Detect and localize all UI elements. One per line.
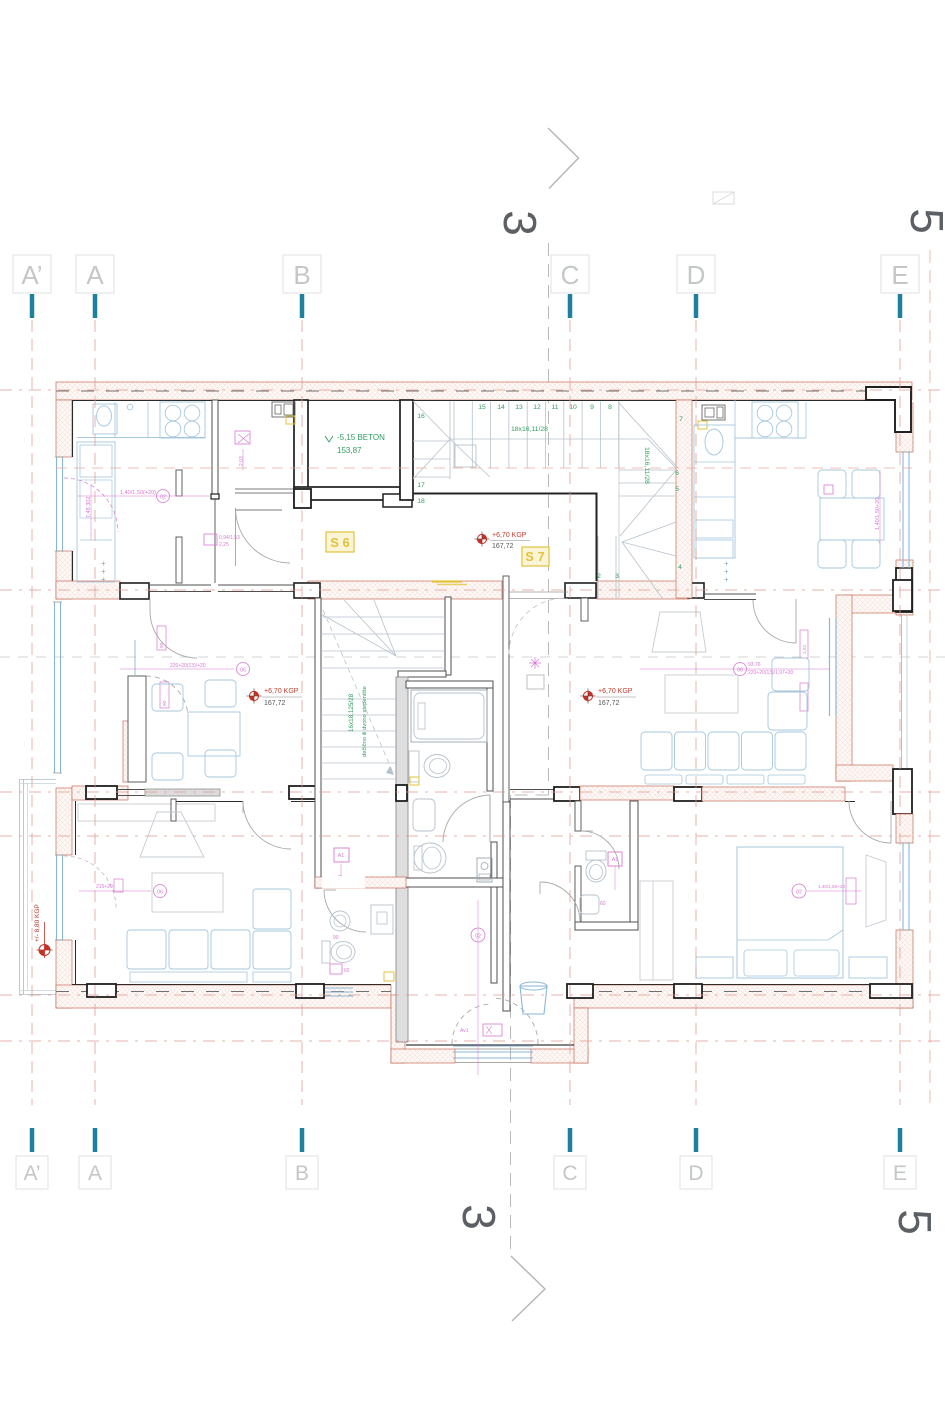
svg-text:E: E (893, 1162, 907, 1185)
svg-text:5: 5 (889, 1209, 941, 1235)
svg-text:167,72: 167,72 (264, 700, 286, 707)
svg-text:C: C (562, 1162, 577, 1185)
svg-text:90: 90 (162, 700, 168, 706)
svg-text:93,76: 93,76 (748, 662, 761, 668)
svg-text:12: 12 (533, 404, 541, 411)
svg-text:60: 60 (344, 968, 350, 974)
svg-text:02: 02 (796, 890, 802, 896)
svg-text:17: 17 (417, 482, 425, 489)
svg-text:A1: A1 (612, 857, 619, 863)
svg-text:2: 2 (597, 573, 601, 580)
svg-text:06: 06 (157, 890, 163, 896)
svg-text:-5,15 BETON: -5,15 BETON (337, 433, 385, 442)
svg-text:02: 02 (475, 934, 481, 940)
svg-text:90: 90 (159, 642, 165, 648)
svg-text:16x18,125/28: 16x18,125/28 (348, 693, 355, 732)
svg-text:+6,70 KGP: +6,70 KGP (492, 532, 527, 539)
svg-text:0,94/1,53: 0,94/1,53 (219, 535, 240, 541)
svg-text:15: 15 (478, 404, 486, 411)
svg-text:2,03: 2,03 (239, 456, 245, 466)
svg-text:D: D (687, 260, 706, 290)
svg-text:06: 06 (737, 668, 743, 674)
svg-text:C: C (561, 260, 580, 290)
svg-text:220+20(13)/1,97+20: 220+20(13)/1,97+20 (748, 670, 794, 676)
svg-text:5: 5 (901, 208, 945, 234)
svg-text:11: 11 (551, 404, 558, 411)
svg-text:2,25: 2,25 (219, 542, 229, 548)
svg-text:A1: A1 (338, 853, 345, 859)
svg-text:13: 13 (515, 404, 523, 411)
svg-text:18: 18 (417, 498, 425, 505)
svg-text:+: + (101, 575, 106, 584)
svg-text:dečično ili dvono stepenište: dečično ili dvono stepenište (362, 686, 368, 757)
svg-text:167,72: 167,72 (492, 543, 514, 550)
svg-text:90: 90 (333, 935, 339, 941)
svg-text:1,51: 1,51 (802, 644, 808, 654)
svg-text:9: 9 (590, 404, 594, 411)
svg-text:1,40/1,50(+20): 1,40/1,50(+20) (120, 490, 156, 496)
svg-text:220+20(13)/+20: 220+20(13)/+20 (170, 663, 206, 669)
svg-text:A: A (86, 260, 104, 290)
svg-text:D: D (688, 1162, 703, 1185)
svg-text:B: B (293, 260, 310, 290)
svg-text:+: + (724, 575, 729, 584)
svg-text:+6,70 KGP: +6,70 KGP (598, 688, 633, 695)
svg-text:A: A (88, 1162, 102, 1185)
svg-text:14: 14 (497, 404, 505, 411)
svg-text:S 6: S 6 (330, 535, 350, 550)
svg-text:3: 3 (615, 573, 619, 580)
svg-text:7: 7 (679, 416, 683, 423)
svg-text:A’: A’ (21, 260, 42, 290)
svg-text:215+20: 215+20 (96, 884, 113, 890)
svg-text:3: 3 (494, 210, 546, 236)
svg-text:S 7: S 7 (525, 549, 545, 564)
svg-text:02: 02 (160, 495, 166, 501)
svg-text:60: 60 (600, 901, 606, 907)
svg-text:1,40/1,50+20: 1,40/1,50+20 (875, 498, 881, 530)
svg-text:06: 06 (240, 668, 246, 674)
svg-text:+/- 8,80 KGP: +/- 8,80 KGP (34, 904, 41, 942)
svg-text:167,72: 167,72 (598, 700, 620, 707)
svg-text:6: 6 (675, 470, 679, 477)
svg-text:10: 10 (569, 404, 577, 411)
svg-text:A’: A’ (23, 1162, 40, 1185)
svg-text:4: 4 (678, 564, 682, 571)
svg-text:3: 3 (453, 1204, 505, 1230)
svg-text:8: 8 (608, 404, 612, 411)
svg-text:153,87: 153,87 (337, 446, 362, 455)
svg-text:E: E (891, 260, 908, 290)
svg-text:5: 5 (675, 486, 679, 493)
svg-text:18x16,11/28: 18x16,11/28 (643, 447, 650, 484)
svg-text:+6,70 KGP: +6,70 KGP (264, 688, 299, 695)
svg-text:16: 16 (417, 413, 425, 420)
svg-text:18x16,11/28: 18x16,11/28 (511, 426, 548, 433)
svg-text:1,40/1,50+20: 1,40/1,50+20 (818, 884, 845, 889)
svg-text:B: B (295, 1162, 309, 1185)
svg-text:Av1: Av1 (460, 1028, 469, 1034)
